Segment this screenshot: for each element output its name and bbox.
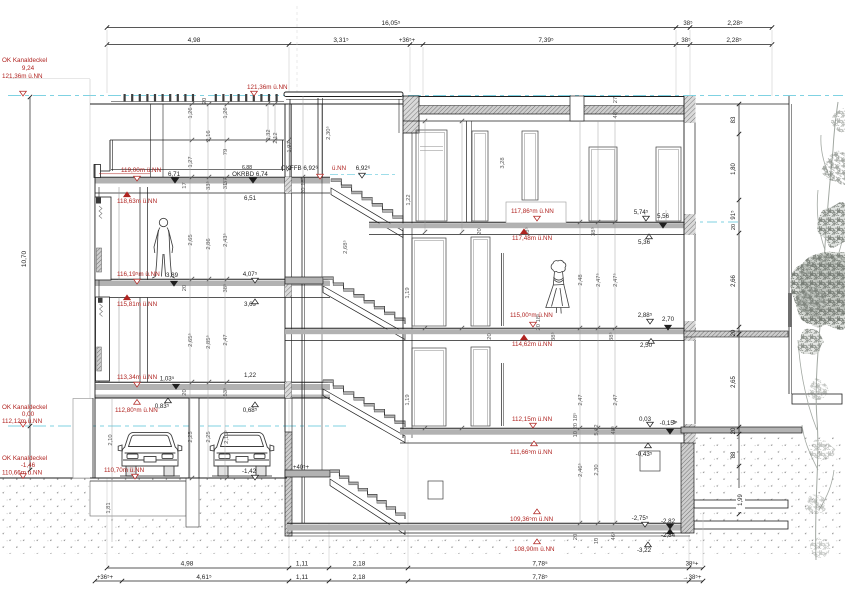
- svg-text:113,34m ü.NN: 113,34m ü.NN: [117, 374, 158, 381]
- svg-text:1,22: 1,22: [406, 194, 412, 205]
- svg-text:115,00⁵m ü.NN: 115,00⁵m ü.NN: [510, 312, 553, 319]
- svg-text:2,30: 2,30: [594, 464, 600, 475]
- svg-text:91⁵: 91⁵: [730, 210, 737, 220]
- svg-text:3,89: 3,89: [166, 272, 179, 279]
- svg-text:1,22: 1,22: [244, 372, 257, 379]
- svg-text:1,26: 1,26: [223, 107, 229, 118]
- svg-text:2,16: 2,16: [206, 130, 212, 141]
- svg-text:121,36m ü.NN: 121,36m ü.NN: [2, 73, 43, 80]
- svg-text:9,24: 9,24: [22, 65, 35, 72]
- svg-text:OKRBD 6,74: OKRBD 6,74: [232, 171, 268, 178]
- svg-text:5,74⁵: 5,74⁵: [634, 209, 649, 216]
- svg-text:1,81: 1,81: [106, 502, 112, 513]
- svg-text:20: 20: [182, 389, 188, 395]
- svg-text:1,26: 1,26: [188, 107, 194, 118]
- svg-text:20: 20: [731, 224, 737, 230]
- svg-text:31: 31: [223, 183, 229, 189]
- svg-text:2,68⁵: 2,68⁵: [342, 240, 349, 254]
- svg-text:109,36⁵m ü.NN: 109,36⁵m ü.NN: [510, 516, 554, 523]
- svg-text:83: 83: [731, 116, 737, 123]
- svg-text:20: 20: [487, 333, 493, 339]
- svg-text:1,97: 1,97: [287, 141, 293, 152]
- svg-text:+40⁵+: +40⁵+: [293, 464, 310, 471]
- svg-text:38⁵: 38⁵: [683, 20, 693, 27]
- svg-text:2,10⁵: 2,10⁵: [223, 430, 230, 444]
- svg-text:OK Kanaldeckel: OK Kanaldeckel: [2, 404, 47, 411]
- svg-text:2,25: 2,25: [206, 431, 212, 442]
- svg-text:1,19: 1,19: [405, 394, 411, 405]
- svg-text:-0,43⁵: -0,43⁵: [636, 451, 653, 458]
- svg-text:→38⁵+: →38⁵+: [683, 574, 702, 581]
- svg-text:20: 20: [202, 98, 208, 104]
- svg-text:2,65: 2,65: [188, 234, 194, 245]
- svg-text:20 18⁵: 20 18⁵: [300, 176, 307, 194]
- svg-text:2,32: 2,32: [266, 129, 272, 140]
- svg-text:1,11: 1,11: [296, 561, 309, 568]
- svg-text:2,47: 2,47: [223, 334, 229, 345]
- svg-text:20: 20: [731, 329, 737, 336]
- svg-text:27: 27: [613, 97, 619, 103]
- svg-text:2,30⁵: 2,30⁵: [325, 126, 332, 140]
- svg-text:0,00: 0,00: [22, 411, 35, 418]
- svg-text:+36⁵+: +36⁵+: [97, 574, 114, 581]
- svg-text:2,65⁵: 2,65⁵: [187, 333, 194, 347]
- svg-text:7,39⁵: 7,39⁵: [538, 37, 554, 44]
- svg-text:118,63m ü.NN: 118,63m ü.NN: [117, 198, 158, 205]
- svg-text:38⁵: 38⁵: [222, 283, 229, 292]
- svg-text:20: 20: [477, 228, 483, 234]
- svg-text:38⁵+: 38⁵+: [686, 561, 699, 568]
- svg-text:38⁵: 38⁵: [590, 226, 597, 235]
- svg-text:+36⁵+: +36⁵+: [399, 37, 416, 44]
- svg-text:1,80: 1,80: [731, 163, 737, 175]
- svg-text:-1,46: -1,46: [21, 462, 36, 469]
- svg-text:7,78⁵: 7,78⁵: [532, 574, 548, 581]
- svg-text:OK Kanaldeckel: OK Kanaldeckel: [2, 57, 47, 64]
- svg-text:6,51: 6,51: [244, 195, 257, 202]
- svg-text:119,00m ü.NN: 119,00m ü.NN: [121, 167, 162, 174]
- svg-text:2,47: 2,47: [578, 394, 584, 405]
- svg-text:53⁵: 53⁵: [222, 387, 229, 396]
- svg-text:48⁵: 48⁵: [610, 425, 617, 434]
- svg-text:5,62: 5,62: [594, 424, 600, 435]
- svg-text:3,31⁵: 3,31⁵: [333, 37, 349, 44]
- svg-text:2,70: 2,70: [662, 316, 675, 323]
- svg-text:6,92⁶: 6,92⁶: [356, 165, 371, 172]
- svg-text:0,83⁵: 0,83⁵: [155, 403, 170, 410]
- svg-text:-2,84: -2,84: [661, 532, 676, 539]
- svg-text:2,28⁵: 2,28⁵: [726, 37, 742, 44]
- svg-text:4,98: 4,98: [188, 37, 201, 44]
- svg-text:2,12: 2,12: [273, 132, 279, 143]
- svg-text:5,36: 5,36: [638, 239, 651, 246]
- svg-text:108,90m ü.NN: 108,90m ü.NN: [514, 546, 555, 553]
- svg-text:5,56: 5,56: [657, 213, 670, 220]
- svg-text:112,80⁵m ü.NN: 112,80⁵m ü.NN: [115, 407, 158, 414]
- svg-text:2,47: 2,47: [613, 394, 619, 405]
- svg-text:3,28: 3,28: [500, 157, 506, 168]
- svg-text:4,61⁵: 4,61⁵: [196, 574, 212, 581]
- svg-text:OKFFB 6,92⁶: OKFFB 6,92⁶: [281, 165, 318, 172]
- svg-text:4,07⁵: 4,07⁵: [243, 271, 258, 278]
- svg-text:88: 88: [731, 451, 737, 458]
- svg-text:1,11: 1,11: [296, 574, 309, 581]
- svg-text:117,86⁵m ü.NN: 117,86⁵m ü.NN: [511, 208, 554, 215]
- svg-text:112,15m ü.NN: 112,15m ü.NN: [512, 416, 553, 423]
- svg-text:116,19⁵m ü.NN: 116,19⁵m ü.NN: [117, 271, 160, 278]
- svg-text:38⁵: 38⁵: [608, 331, 615, 340]
- svg-text:-2,75⁵: -2,75⁵: [632, 515, 649, 522]
- svg-text:2,28⁵: 2,28⁵: [727, 20, 743, 27]
- svg-text:20: 20: [182, 285, 188, 291]
- svg-text:46⁵: 46⁵: [610, 531, 617, 540]
- svg-text:OK Kanaldeckel: OK Kanaldeckel: [2, 455, 47, 462]
- svg-text:2,65: 2,65: [731, 376, 737, 388]
- svg-text:1,19: 1,19: [405, 287, 411, 298]
- svg-text:38⁵: 38⁵: [681, 37, 691, 44]
- svg-text:-3,22: -3,22: [637, 547, 652, 554]
- svg-text:79: 79: [223, 149, 229, 155]
- svg-text:1,27: 1,27: [188, 156, 194, 167]
- svg-text:2,47⁵: 2,47⁵: [595, 273, 602, 287]
- svg-text:114,62m ü.NN: 114,62m ü.NN: [512, 341, 553, 348]
- svg-text:2,18: 2,18: [353, 574, 366, 581]
- svg-text:115,81m ü.NN: 115,81m ü.NN: [117, 301, 158, 308]
- svg-text:2,47⁵: 2,47⁵: [612, 273, 619, 287]
- svg-text:2,85⁵: 2,85⁵: [205, 335, 212, 349]
- svg-text:111,66⁵m ü.NN: 111,66⁵m ü.NN: [510, 449, 553, 456]
- svg-text:2,18: 2,18: [353, 561, 366, 568]
- svg-text:2,10: 2,10: [108, 434, 114, 445]
- svg-text:17: 17: [182, 182, 188, 188]
- svg-text:2,25: 2,25: [188, 431, 194, 442]
- svg-text:121,36m ü.NN: 121,36m ü.NN: [247, 84, 288, 91]
- svg-text:1,03⁵: 1,03⁵: [160, 376, 175, 383]
- svg-text:2,88⁵: 2,88⁵: [638, 312, 653, 319]
- svg-text:110,70m ü.NN: 110,70m ü.NN: [104, 467, 145, 474]
- svg-text:20: 20: [731, 427, 737, 434]
- svg-text:48⁵: 48⁵: [612, 109, 619, 118]
- svg-text:16,05⁵: 16,05⁵: [382, 20, 401, 27]
- svg-text:2,86: 2,86: [206, 238, 212, 249]
- svg-text:0,68⁵: 0,68⁵: [243, 407, 258, 414]
- svg-text:117,48m ü.NN: 117,48m ü.NN: [512, 235, 553, 242]
- svg-text:-1,42: -1,42: [242, 468, 257, 475]
- svg-text:6,71: 6,71: [168, 171, 181, 178]
- svg-text:4,98: 4,98: [181, 561, 194, 568]
- svg-text:38⁵: 38⁵: [550, 331, 557, 340]
- svg-text:7,78⁵: 7,78⁵: [532, 561, 548, 568]
- svg-text:10,70: 10,70: [21, 250, 28, 267]
- svg-text:2,48: 2,48: [578, 274, 584, 285]
- svg-text:1,99: 1,99: [738, 494, 744, 506]
- svg-text:10 20 18⁵: 10 20 18⁵: [572, 412, 579, 438]
- svg-text:33⁵: 33⁵: [205, 180, 212, 189]
- svg-text:20: 20: [573, 534, 579, 540]
- svg-text:2,43⁵: 2,43⁵: [222, 233, 229, 247]
- svg-text:2,46⁵: 2,46⁵: [577, 463, 584, 477]
- svg-text:5⁵: 5⁵: [673, 420, 678, 426]
- svg-text:10: 10: [594, 538, 600, 544]
- svg-text:2,66: 2,66: [731, 275, 737, 287]
- svg-text:ü.NN: ü.NN: [332, 165, 346, 172]
